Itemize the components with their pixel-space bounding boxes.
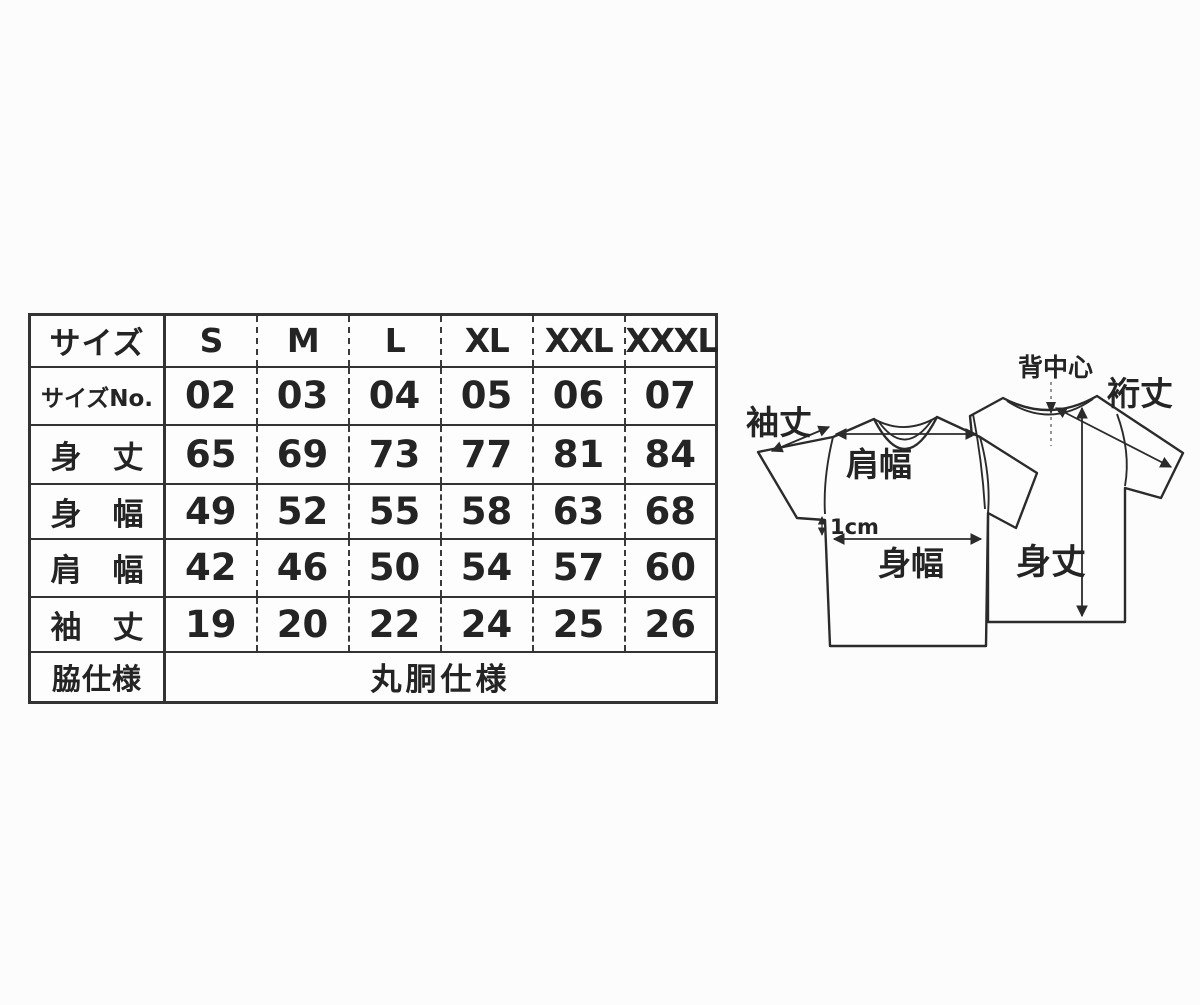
back-center-label: 背中心 [1018, 353, 1093, 382]
side-spec-value: 丸胴仕様 [165, 652, 717, 703]
size-no-cell: 07 [625, 367, 717, 425]
body-length-cell: 73 [349, 425, 441, 484]
row-label-size-no: サイズNo. [30, 367, 165, 425]
table-row-body-width: 身 幅 49 52 55 58 63 68 [30, 484, 717, 539]
body-width-cell: 55 [349, 484, 441, 539]
row-label-body-width: 身 幅 [30, 484, 165, 539]
table-row-side-spec: 脇仕様 丸胴仕様 [30, 652, 717, 703]
table-corner-label: サイズ [30, 315, 165, 367]
size-header-xxl: XXL [533, 315, 625, 367]
body-length-cell: 65 [165, 425, 257, 484]
shoulder-width-cell: 42 [165, 539, 257, 597]
size-no-cell: 05 [441, 367, 533, 425]
body-width-cell: 49 [165, 484, 257, 539]
row-label-sleeve-length: 袖 丈 [30, 597, 165, 652]
size-no-cell: 02 [165, 367, 257, 425]
one-cm-label: 1cm [830, 515, 879, 539]
sleeve-length-label: 袖丈 [746, 403, 812, 442]
shoulder-width-label: 肩幅 [846, 445, 912, 484]
body-length-cell: 77 [441, 425, 533, 484]
sleeve-length-cell: 24 [441, 597, 533, 652]
body-width-cell: 68 [625, 484, 717, 539]
body-length-cell: 84 [625, 425, 717, 484]
row-label-shoulder-width: 肩 幅 [30, 539, 165, 597]
body-length-cell: 69 [257, 425, 349, 484]
tshirt-measurement-diagram: 袖丈 肩幅 1cm 身幅 背中心 裄丈 身丈 [730, 330, 1200, 670]
sleeve-from-center-label: 裄丈 [1107, 374, 1173, 413]
table-row-shoulder-width: 肩 幅 42 46 50 54 57 60 [30, 539, 717, 597]
size-header-xxxl: XXXL [625, 315, 717, 367]
size-header-l: L [349, 315, 441, 367]
size-header-s: S [165, 315, 257, 367]
body-length-cell: 81 [533, 425, 625, 484]
sleeve-length-cell: 20 [257, 597, 349, 652]
table-row-body-length: 身 丈 65 69 73 77 81 84 [30, 425, 717, 484]
shoulder-width-cell: 46 [257, 539, 349, 597]
size-no-cell: 03 [257, 367, 349, 425]
size-no-cell: 06 [533, 367, 625, 425]
sleeve-length-cell: 26 [625, 597, 717, 652]
row-label-body-length: 身 丈 [30, 425, 165, 484]
size-spec-sheet: サイズ S M L XL XXL XXXL サイズNo. 02 03 04 05… [0, 0, 1200, 1005]
size-no-cell: 04 [349, 367, 441, 425]
body-width-label: 身幅 [878, 544, 944, 583]
shoulder-width-cell: 57 [533, 539, 625, 597]
sleeve-length-cell: 25 [533, 597, 625, 652]
table-row-size-no: サイズNo. 02 03 04 05 06 07 [30, 367, 717, 425]
body-width-cell: 58 [441, 484, 533, 539]
sleeve-length-cell: 22 [349, 597, 441, 652]
body-length-label: 身丈 [1016, 543, 1086, 583]
shoulder-width-cell: 60 [625, 539, 717, 597]
size-header-m: M [257, 315, 349, 367]
shoulder-width-cell: 54 [441, 539, 533, 597]
size-table: サイズ S M L XL XXL XXXL サイズNo. 02 03 04 05… [28, 313, 718, 704]
size-header-xl: XL [441, 315, 533, 367]
body-width-cell: 63 [533, 484, 625, 539]
table-row-sleeve-length: 袖 丈 19 20 22 24 25 26 [30, 597, 717, 652]
shoulder-width-cell: 50 [349, 539, 441, 597]
table-header-row: サイズ S M L XL XXL XXXL [30, 315, 717, 367]
sleeve-length-cell: 19 [165, 597, 257, 652]
row-label-side-spec: 脇仕様 [30, 652, 165, 703]
body-width-cell: 52 [257, 484, 349, 539]
